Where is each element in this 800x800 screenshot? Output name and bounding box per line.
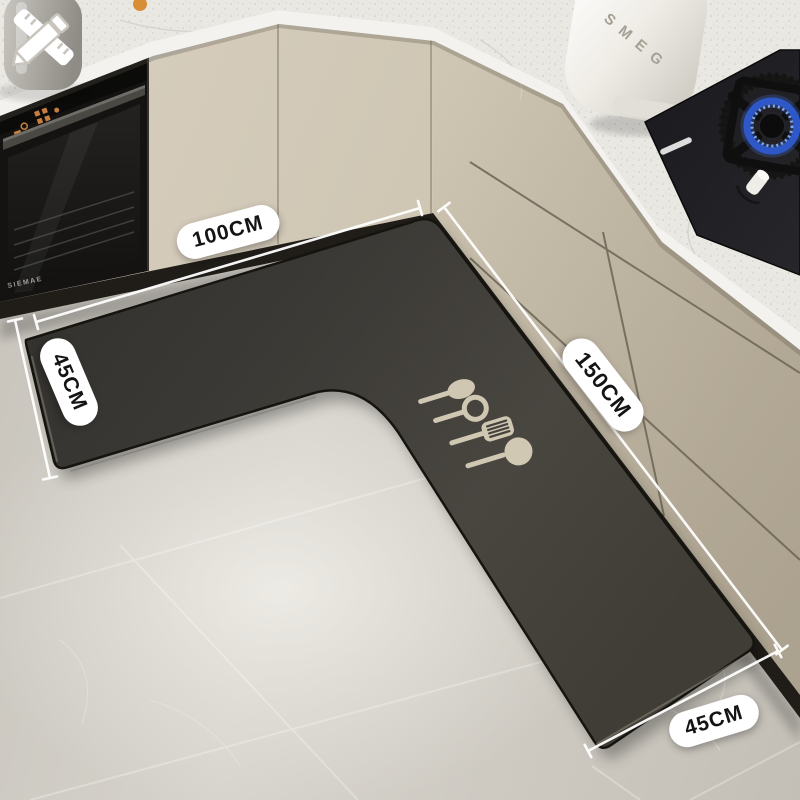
kitchen-scene: SIEMAE SMEG [0, 0, 800, 800]
pencil-ruler-icon [0, 0, 86, 76]
scene-artwork: SIEMAE SMEG [0, 0, 800, 800]
